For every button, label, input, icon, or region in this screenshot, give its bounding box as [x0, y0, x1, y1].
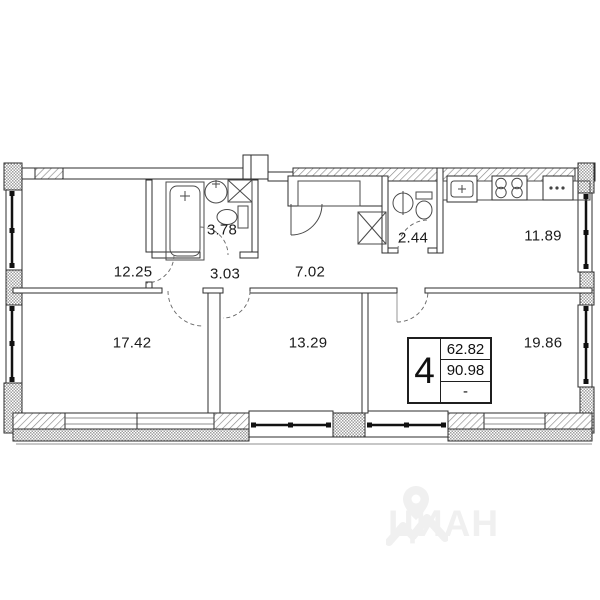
cian-pin-icon — [386, 484, 448, 548]
room-label-17-42: 17.42 — [113, 335, 152, 352]
info-kitchen-area: - — [441, 382, 490, 402]
apartment-info-box: 4 62.82 90.98 - — [407, 337, 492, 404]
room-label-13-29: 13.29 — [289, 335, 328, 352]
kitchen-sink-icon — [447, 176, 477, 202]
interior-walls — [13, 168, 592, 413]
room-label-19-86: 19.86 — [524, 335, 563, 352]
room-label-2-44: 2.44 — [398, 230, 428, 247]
floorplan-image[interactable]: .w{fill:#ffffff;stroke:#2e2e2e;stroke-wi… — [0, 0, 600, 600]
bottom-wall — [13, 411, 592, 444]
watermark: ЦИАН — [386, 484, 566, 548]
washbasin-bath-icon — [205, 180, 227, 203]
stove-icon — [492, 176, 527, 200]
counter-unit-icon — [543, 176, 573, 200]
vent-shaft-bath-icon — [228, 180, 252, 202]
toilet-wc-icon — [416, 192, 432, 219]
info-total-area: 90.98 — [441, 360, 490, 381]
room-label-3-03: 3.03 — [210, 266, 240, 283]
bathtub-icon — [166, 182, 204, 260]
left-wall — [4, 163, 22, 433]
washbasin-wc-icon — [393, 191, 413, 215]
info-rooms-count: 4 — [409, 339, 441, 402]
room-label-7-02: 7.02 — [295, 264, 325, 281]
room-label-3-78: 3.78 — [207, 222, 237, 239]
info-areas: 62.82 90.98 - — [441, 339, 490, 402]
page: .w{fill:#ffffff;stroke:#2e2e2e;stroke-wi… — [0, 0, 600, 600]
right-wall — [578, 163, 594, 433]
info-living-area: 62.82 — [441, 339, 490, 360]
room-label-12-25: 12.25 — [114, 264, 153, 281]
room-label-11-89: 11.89 — [524, 228, 561, 245]
